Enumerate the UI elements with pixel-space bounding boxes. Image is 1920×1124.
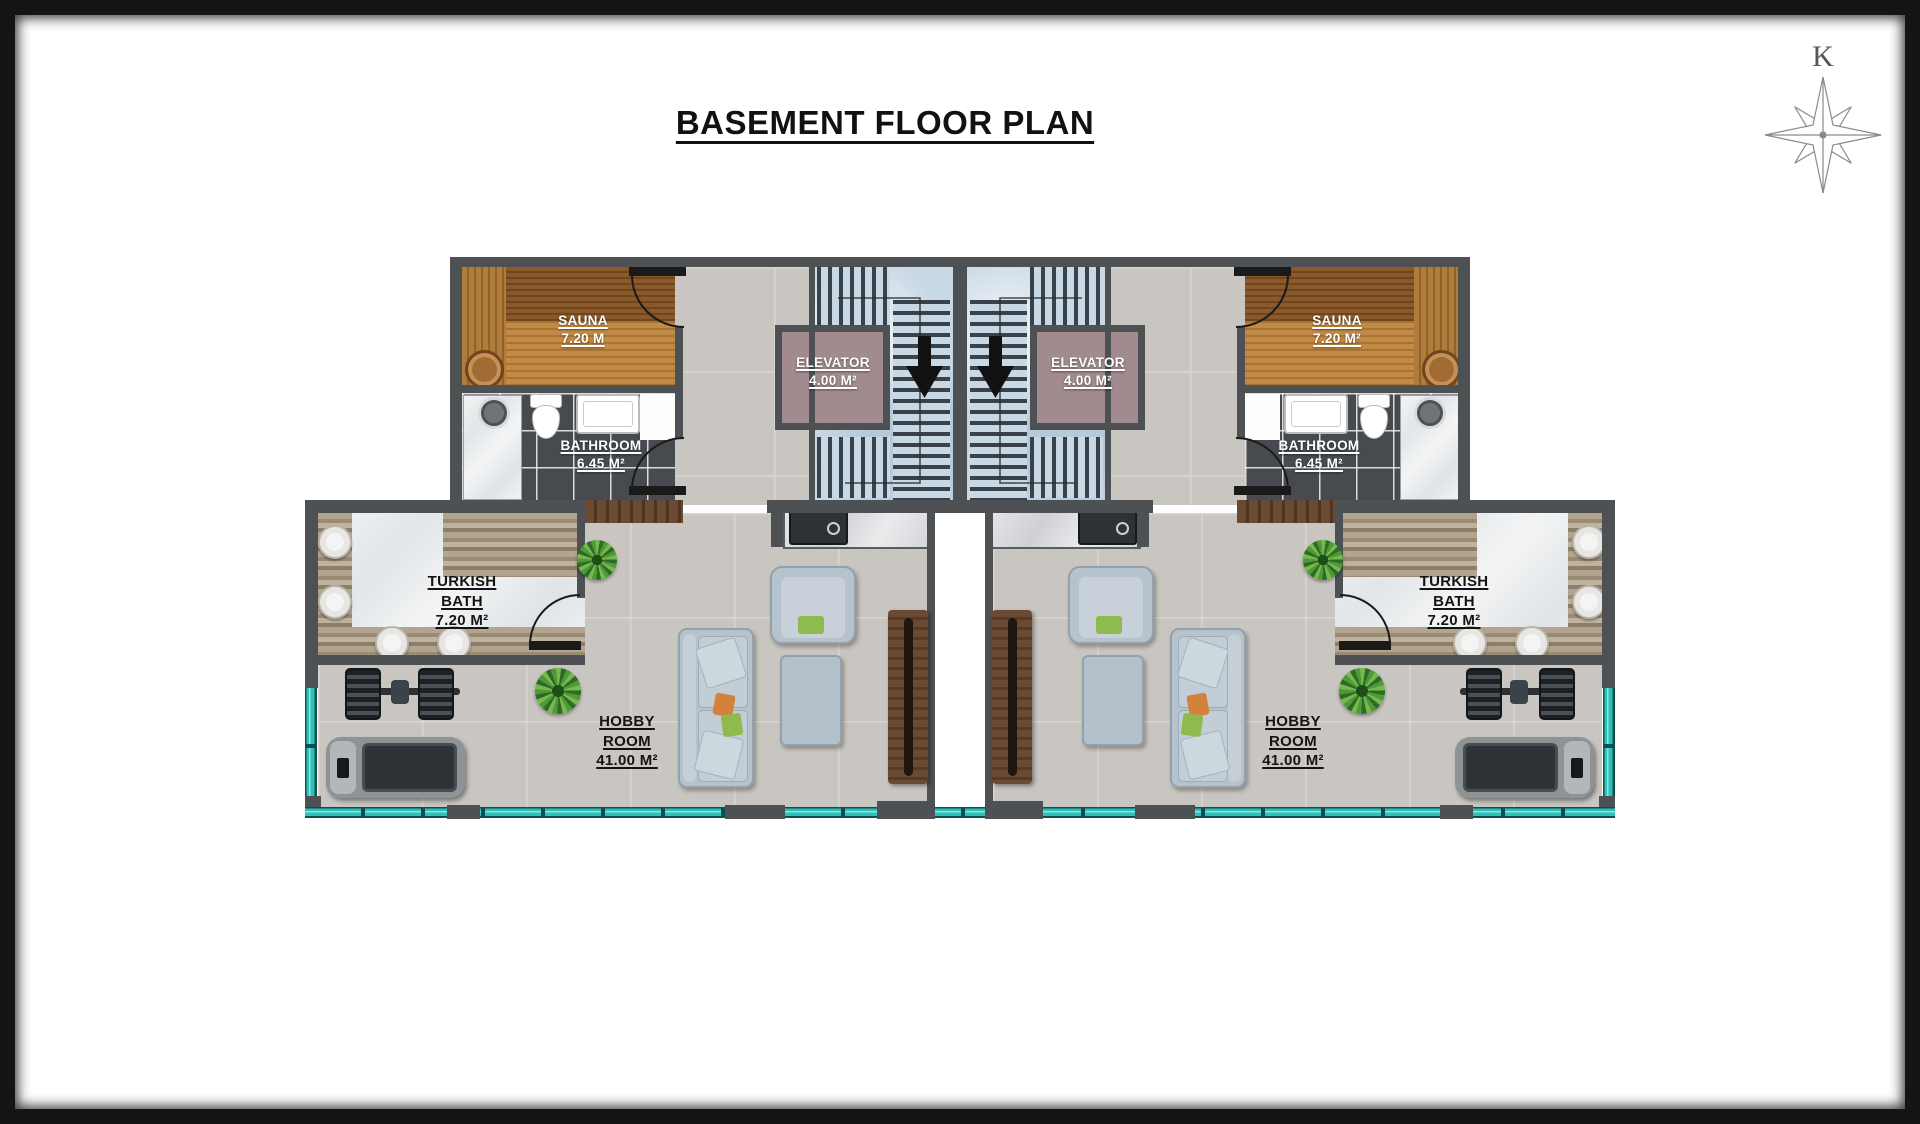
toilet-icon-left (530, 394, 562, 439)
hall-cabinet-left (585, 500, 683, 523)
window-pier (985, 801, 1043, 819)
wall-sauna-bath-right (1245, 385, 1458, 393)
window-pier (1135, 805, 1195, 819)
plant-icon (535, 668, 581, 714)
wall-lower-top-right (1335, 500, 1615, 513)
bathroom-cabinet-right (1245, 394, 1280, 440)
plant-icon (577, 540, 617, 580)
shower-head-icon-left (481, 400, 507, 426)
stair-flight-side-right (970, 300, 1027, 505)
wall-sauna-left-right-unit (1237, 326, 1245, 393)
room-label-bathroom-left: BATHROOM6.45 M² (561, 437, 642, 472)
stair-flight-bottom-left (817, 437, 890, 498)
wall-turkish-bottom-left (305, 655, 585, 665)
room-label-hobby-room-right: HOBBYROOM41.00 M² (1262, 712, 1324, 771)
wall-bathroom-left-right-unit (1237, 393, 1245, 438)
room-label-sauna-right: SAUNA7.20 M² (1312, 312, 1362, 347)
window-pier (447, 805, 480, 819)
room-label-sauna-left: SAUNA7.20 M (558, 312, 608, 347)
stair-flight-top-left (817, 267, 890, 327)
counter-sink-icon-right (1078, 509, 1137, 545)
window-bottom-band (305, 807, 1615, 818)
counter-end-wall-left (771, 505, 783, 547)
wall-gap-left (927, 505, 935, 808)
plant-icon (1339, 668, 1385, 714)
basin-icon (318, 585, 352, 619)
gym-machine-left (345, 668, 460, 716)
basin-icon (1572, 525, 1606, 559)
wall-sauna-right-left-unit (675, 326, 683, 393)
wall-stairbottom-right (967, 500, 1153, 513)
stair-flight-bottom-right (1030, 437, 1103, 498)
stair-flight-top-right (1030, 267, 1103, 327)
ottoman-left (780, 655, 842, 746)
counter-end-wall-right (1137, 505, 1149, 547)
sofa-right (1170, 628, 1246, 788)
page-title: BASEMENT FLOOR PLAN (676, 104, 1094, 142)
room-label-hobby-room-left: HOBBYROOM41.00 M² (596, 712, 658, 771)
treadmill-right (1455, 737, 1594, 798)
compass-rose-icon: K (1762, 42, 1884, 203)
bathroom-cabinet-left (640, 394, 675, 440)
shower-head-icon-right (1417, 400, 1443, 426)
armchair-right (1068, 566, 1154, 644)
sink-icon-left (576, 394, 640, 434)
room-label-elevator-right: ELEVATOR4.00 M² (1051, 354, 1125, 389)
toilet-icon-right (1358, 394, 1390, 439)
tv-unit-right (992, 610, 1032, 784)
window-left-wall (305, 688, 317, 800)
counter-sink-icon-left (789, 509, 848, 545)
wall-center-divider (953, 257, 967, 513)
sofa-left (678, 628, 754, 788)
sauna-bucket-icon-right (1422, 350, 1461, 389)
room-label-elevator-left: ELEVATOR4.00 M² (796, 354, 870, 389)
ottoman-right (1082, 655, 1144, 746)
basin-icon (318, 525, 352, 559)
window-pier (1440, 805, 1473, 819)
compass-north-label: K (1762, 42, 1884, 72)
doors-and-arrows-overlay (0, 0, 1920, 1124)
plant-icon (1303, 540, 1343, 580)
window-pier (725, 805, 785, 819)
wall-upper-left (450, 257, 462, 505)
tv-unit-left (888, 610, 928, 784)
wall-sauna-bath-left (462, 385, 675, 393)
stair-flight-side-left (893, 300, 950, 505)
sink-icon-right (1284, 394, 1348, 434)
floor-plan-canvas: BASEMENT FLOOR PLAN K (0, 0, 1920, 1124)
picture-frame-border (0, 0, 1920, 1124)
compass-rose-star (1762, 72, 1884, 198)
room-label-bathroom-right: BATHROOM6.45 M² (1279, 437, 1360, 472)
turkish-platform-left (443, 513, 577, 577)
armchair-left (770, 566, 856, 644)
sauna-bucket-icon-left (465, 350, 504, 389)
room-label-turkish-bath-right: TURKISHBATH7.20 M² (1420, 572, 1489, 631)
wall-upper-right (1458, 257, 1470, 505)
hall-cabinet-right (1237, 500, 1335, 523)
basin-icon (1572, 585, 1606, 619)
turkish-platform-right (1343, 513, 1477, 577)
window-pier (877, 801, 935, 819)
wall-bathroom-right-left-unit (675, 393, 683, 438)
room-label-turkish-bath-left: TURKISHBATH7.20 M² (428, 572, 497, 631)
window-right-wall (1603, 688, 1615, 800)
wall-turkish-bottom-right (1335, 655, 1615, 665)
treadmill-left (326, 737, 465, 798)
gym-machine-right (1460, 668, 1575, 716)
wall-lower-top-left (305, 500, 585, 513)
wall-stairbottom-left (767, 500, 953, 513)
